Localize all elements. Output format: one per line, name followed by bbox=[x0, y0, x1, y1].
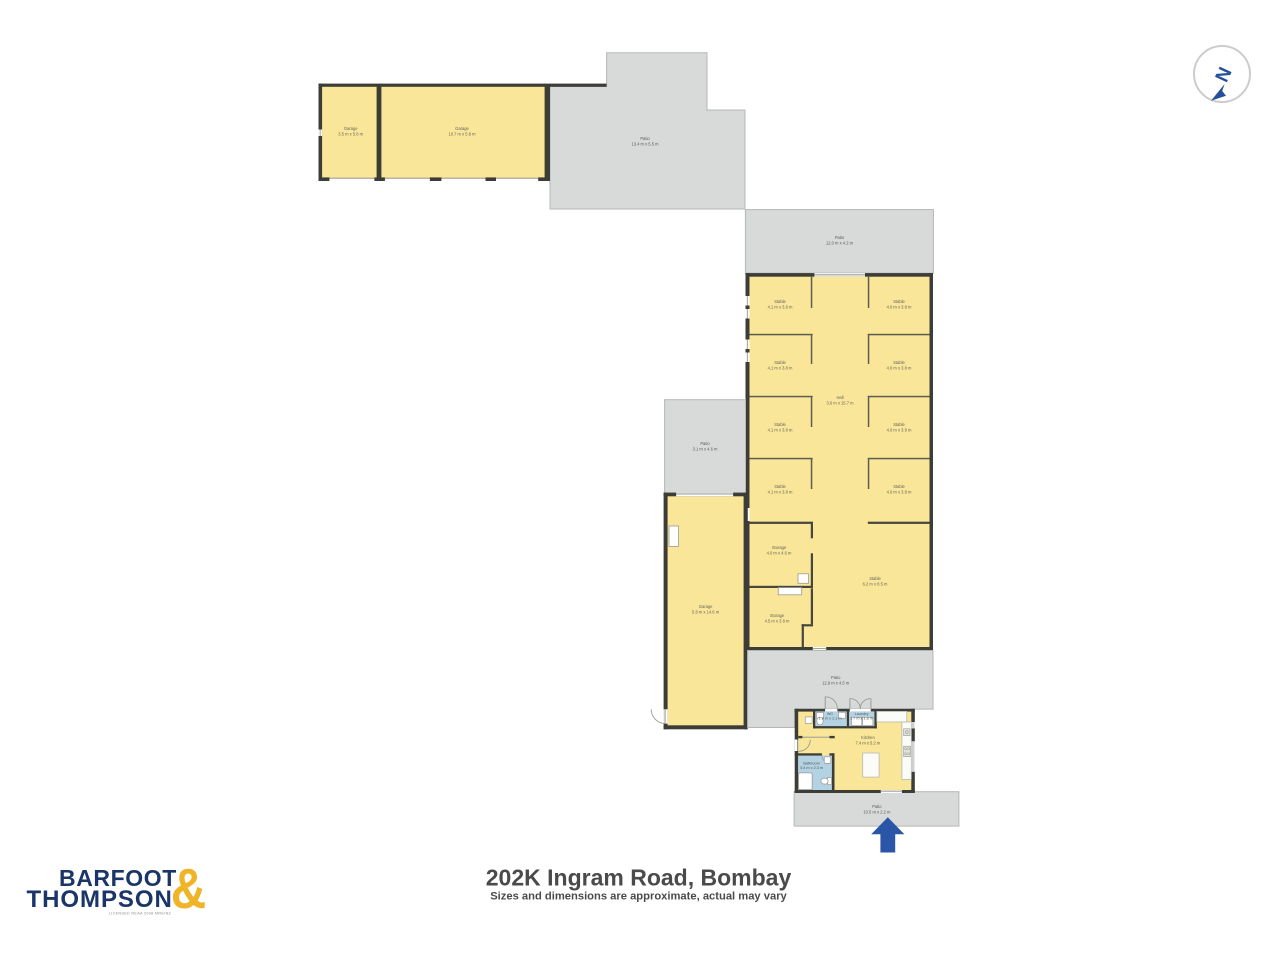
svg-text:4.0 m x 3.8 m: 4.0 m x 3.8 m bbox=[887, 305, 912, 310]
svg-text:4.1 m x 3.8 m: 4.1 m x 3.8 m bbox=[768, 490, 793, 495]
svg-text:Patio: Patio bbox=[835, 235, 845, 240]
svg-text:Stable: Stable bbox=[774, 360, 786, 365]
svg-text:Stable: Stable bbox=[893, 360, 905, 365]
svg-text:Patio: Patio bbox=[700, 441, 710, 446]
svg-text:5.8 m x 14.6 m: 5.8 m x 14.6 m bbox=[692, 610, 720, 615]
svg-text:4.0 m x 3.8 m: 4.0 m x 3.8 m bbox=[887, 366, 912, 371]
svg-text:10.7 m x 5.8 m: 10.7 m x 5.8 m bbox=[448, 132, 476, 137]
svg-text:Stable: Stable bbox=[869, 576, 881, 581]
svg-text:12.9 m x 4.5 m: 12.9 m x 4.5 m bbox=[822, 681, 850, 686]
svg-text:Stable: Stable bbox=[893, 484, 905, 489]
svg-text:3.6 m x 15.7 m: 3.6 m x 15.7 m bbox=[826, 401, 854, 406]
svg-text:12.0 m x 4.2 m: 12.0 m x 4.2 m bbox=[826, 241, 854, 246]
svg-text:Stable: Stable bbox=[774, 484, 786, 489]
svg-text:4.1 m x 3.6 m: 4.1 m x 3.6 m bbox=[768, 305, 793, 310]
svg-text:Kitchen: Kitchen bbox=[861, 735, 875, 740]
svg-text:Patio: Patio bbox=[831, 675, 841, 680]
svg-text:4.1 m x 3.8 m: 4.1 m x 3.8 m bbox=[768, 366, 793, 371]
svg-text:Stable: Stable bbox=[774, 422, 786, 427]
svg-text:Garage: Garage bbox=[344, 126, 358, 131]
svg-text:7.4 m x 5.2 m: 7.4 m x 5.2 m bbox=[855, 741, 880, 746]
svg-text:Sizes and dimensions are appro: Sizes and dimensions are approximate, ac… bbox=[490, 890, 787, 902]
svg-text:THOMPSON: THOMPSON bbox=[27, 886, 173, 913]
svg-text:6.2 m x 8.5 m: 6.2 m x 8.5 m bbox=[863, 582, 888, 587]
svg-text:Bathroom: Bathroom bbox=[803, 761, 819, 765]
svg-text:WC: WC bbox=[827, 712, 834, 716]
svg-text:1.7 m x 1.8 m: 1.7 m x 1.8 m bbox=[850, 717, 873, 721]
svg-text:3.1 m x 4.6 m: 3.1 m x 4.6 m bbox=[693, 447, 718, 452]
svg-text:4.5 m x 3.8 m: 4.5 m x 3.8 m bbox=[765, 619, 790, 624]
svg-text:4.1 m x 3.8 m: 4.1 m x 3.8 m bbox=[768, 428, 793, 433]
svg-text:3.5 m x 5.8 m: 3.5 m x 5.8 m bbox=[338, 132, 363, 137]
svg-text:&: & bbox=[171, 857, 207, 921]
svg-text:Stable: Stable bbox=[774, 299, 786, 304]
svg-text:Patio: Patio bbox=[872, 804, 882, 809]
svg-text:Laundry: Laundry bbox=[855, 712, 869, 716]
svg-text:4.0 m x 4.6 m: 4.0 m x 4.6 m bbox=[767, 551, 792, 556]
svg-text:10.5 m x 2.2 m: 10.5 m x 2.2 m bbox=[863, 810, 891, 815]
svg-text:LICENSED REAA 2008 MREINZ: LICENSED REAA 2008 MREINZ bbox=[109, 912, 172, 916]
svg-text:3.4 m x 2.3 m: 3.4 m x 2.3 m bbox=[800, 766, 823, 770]
svg-text:Patio: Patio bbox=[640, 136, 650, 141]
svg-text:Stable: Stable bbox=[893, 299, 905, 304]
svg-text:Hall: Hall bbox=[836, 395, 843, 400]
svg-text:4.0 m x 3.8 m: 4.0 m x 3.8 m bbox=[887, 490, 912, 495]
svg-text:Garage: Garage bbox=[699, 604, 713, 609]
svg-text:Storage: Storage bbox=[772, 545, 787, 550]
svg-text:Garage: Garage bbox=[455, 126, 469, 131]
svg-text:Stable: Stable bbox=[893, 422, 905, 427]
svg-text:4.0 m x 3.9 m: 4.0 m x 3.9 m bbox=[887, 428, 912, 433]
svg-text:13.4 m x 5.5 m: 13.4 m x 5.5 m bbox=[631, 142, 659, 147]
svg-text:1.9 m x 1.1 m: 1.9 m x 1.1 m bbox=[818, 717, 841, 721]
svg-text:202K Ingram Road, Bombay: 202K Ingram Road, Bombay bbox=[486, 865, 792, 891]
svg-text:Storage: Storage bbox=[770, 613, 785, 618]
